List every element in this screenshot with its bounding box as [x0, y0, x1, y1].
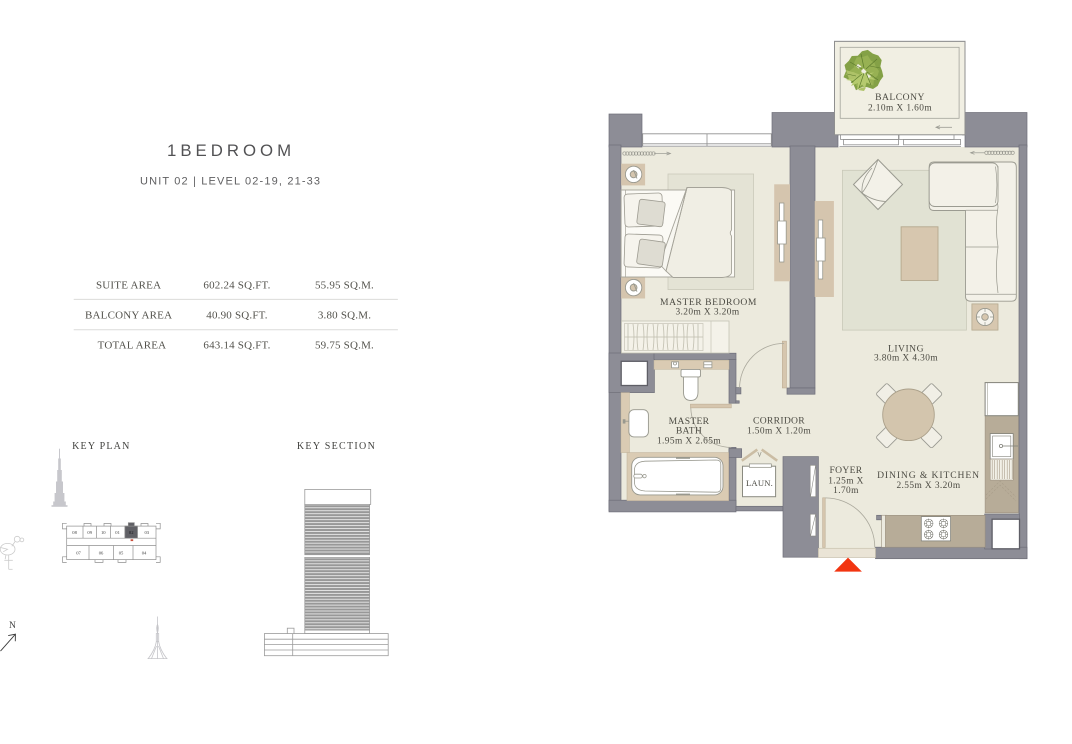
- svg-text:3.20m X 3.20m: 3.20m X 3.20m: [675, 308, 739, 318]
- svg-text:55.95 SQ.M.: 55.95 SQ.M.: [315, 280, 374, 292]
- svg-text:LAUN.: LAUN.: [746, 478, 773, 488]
- svg-text:602.24 SQ.FT.: 602.24 SQ.FT.: [203, 280, 270, 292]
- svg-text:08: 08: [72, 530, 77, 535]
- svg-text:04: 04: [142, 551, 147, 556]
- svg-text:643.14 SQ.FT.: 643.14 SQ.FT.: [203, 339, 270, 351]
- svg-text:01: 01: [115, 530, 120, 535]
- svg-text:40.90 SQ.FT.: 40.90 SQ.FT.: [206, 309, 268, 321]
- svg-text:1.50m X 1.20m: 1.50m X 1.20m: [747, 426, 811, 436]
- svg-text:SUITE AREA: SUITE AREA: [96, 280, 161, 292]
- svg-text:09: 09: [87, 530, 92, 535]
- svg-text:10: 10: [101, 530, 106, 535]
- svg-text:59.75 SQ.M.: 59.75 SQ.M.: [315, 339, 374, 351]
- svg-text:BALCONY: BALCONY: [875, 92, 925, 103]
- svg-text:N: N: [9, 621, 16, 631]
- svg-text:2.55m X 3.20m: 2.55m X 3.20m: [896, 481, 960, 491]
- svg-text:BATH: BATH: [676, 426, 702, 437]
- svg-text:MASTER BEDROOM: MASTER BEDROOM: [660, 297, 757, 308]
- svg-text:1.25m X: 1.25m X: [828, 476, 864, 486]
- svg-text:TOTAL AREA: TOTAL AREA: [98, 339, 167, 351]
- svg-text:FOYER: FOYER: [830, 465, 863, 476]
- svg-text:06: 06: [99, 551, 104, 556]
- svg-text:BALCONY AREA: BALCONY AREA: [85, 309, 172, 321]
- svg-text:02: 02: [129, 530, 134, 535]
- svg-text:3.80 SQ.M.: 3.80 SQ.M.: [318, 309, 371, 321]
- svg-text:03: 03: [145, 530, 150, 535]
- svg-text:1.70m: 1.70m: [833, 486, 859, 496]
- svg-text:KEY PLAN: KEY PLAN: [72, 441, 130, 452]
- svg-text:DINING & KITCHEN: DINING & KITCHEN: [877, 470, 980, 481]
- svg-text:07: 07: [76, 551, 81, 556]
- svg-text:KEY SECTION: KEY SECTION: [297, 441, 376, 452]
- svg-text:CORRIDOR: CORRIDOR: [753, 415, 805, 426]
- svg-text:UNIT 02 | LEVEL 02-19, 21-33: UNIT 02 | LEVEL 02-19, 21-33: [140, 176, 321, 188]
- svg-text:05: 05: [119, 551, 124, 556]
- svg-text:2.10m X 1.60m: 2.10m X 1.60m: [868, 104, 932, 114]
- svg-text:1BEDROOM: 1BEDROOM: [167, 141, 295, 160]
- svg-text:1.95m X 2.65m: 1.95m X 2.65m: [657, 437, 721, 447]
- svg-text:3.80m X 4.30m: 3.80m X 4.30m: [874, 353, 938, 363]
